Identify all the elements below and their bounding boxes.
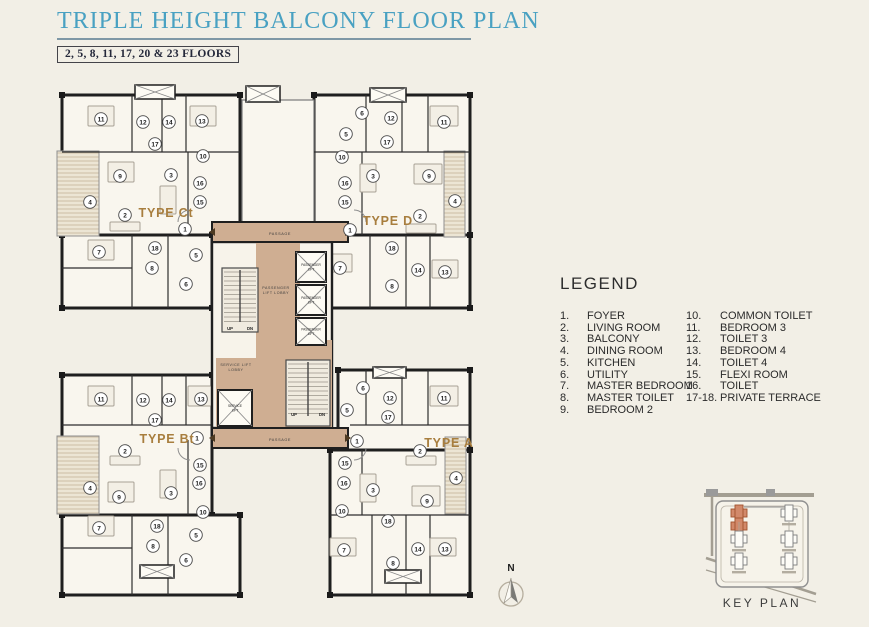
svg-text:11: 11	[441, 119, 448, 126]
legend-item: 14.TOILET 4	[686, 358, 818, 370]
svg-text:3: 3	[169, 490, 173, 497]
svg-text:3: 3	[169, 172, 173, 179]
svg-text:14: 14	[414, 267, 422, 274]
svg-text:9: 9	[118, 173, 122, 180]
svg-text:17: 17	[151, 417, 159, 424]
svg-text:9: 9	[117, 494, 121, 501]
svg-text:7: 7	[97, 249, 101, 256]
svg-text:5: 5	[345, 407, 349, 414]
svg-text:4: 4	[453, 198, 457, 205]
svg-text:17: 17	[383, 139, 391, 146]
svg-text:UP: UP	[227, 326, 233, 331]
legend-item: 5.KITCHEN	[560, 358, 686, 370]
key-plan	[704, 489, 816, 602]
svg-text:UP: UP	[291, 412, 297, 417]
svg-text:DN: DN	[247, 326, 253, 331]
svg-text:11: 11	[98, 116, 105, 123]
svg-text:12: 12	[139, 397, 147, 404]
north-label: N	[507, 563, 514, 574]
legend-item: 9.BEDROOM 2	[560, 405, 686, 417]
svg-text:14: 14	[165, 119, 173, 126]
svg-text:LIFT: LIFT	[232, 409, 239, 413]
svg-text:8: 8	[150, 265, 154, 272]
svg-text:15: 15	[341, 199, 349, 206]
svg-text:12: 12	[386, 395, 394, 402]
svg-text:16: 16	[340, 480, 348, 487]
svg-text:LOBBY: LOBBY	[229, 368, 244, 372]
svg-text:LIFT: LIFT	[308, 268, 315, 272]
svg-text:14: 14	[414, 546, 422, 553]
unit-type-label: TYPE Bt	[140, 432, 195, 446]
svg-text:9: 9	[425, 498, 429, 505]
legend-column-1: 1.FOYER2.LIVING ROOM3.BALCONY4.DINING RO…	[560, 311, 686, 416]
svg-text:PASSAGE: PASSAGE	[269, 232, 291, 236]
svg-text:8: 8	[151, 543, 155, 550]
floor-plan: PASSENGERLIFTPASSENGERLIFTPASSENGERLIFTS…	[57, 85, 474, 598]
svg-text:LIFT: LIFT	[308, 301, 315, 305]
svg-text:13: 13	[441, 546, 449, 553]
svg-text:11: 11	[441, 395, 448, 402]
svg-text:10: 10	[338, 154, 346, 161]
svg-text:PASSENGER: PASSENGER	[301, 296, 321, 300]
svg-text:SERVICE LIFT: SERVICE LIFT	[220, 363, 252, 367]
svg-text:15: 15	[196, 462, 204, 469]
svg-text:DN: DN	[319, 412, 325, 417]
legend-panel: LEGEND 1.FOYER2.LIVING ROOM3.BALCONY4.DI…	[560, 274, 822, 416]
svg-text:6: 6	[184, 281, 188, 288]
svg-text:13: 13	[441, 269, 449, 276]
legend-item: 17-18.PRIVATE TERRACE	[686, 393, 818, 405]
svg-text:2: 2	[418, 448, 422, 455]
svg-text:1: 1	[355, 438, 359, 445]
svg-text:18: 18	[384, 518, 392, 525]
svg-text:10: 10	[199, 153, 207, 160]
svg-text:17: 17	[151, 141, 159, 148]
svg-text:8: 8	[391, 560, 395, 567]
svg-text:10: 10	[338, 508, 346, 515]
legend-title: LEGEND	[560, 274, 822, 294]
svg-text:2: 2	[418, 213, 422, 220]
svg-text:SERVICE: SERVICE	[228, 404, 242, 408]
svg-text:6: 6	[361, 385, 365, 392]
key-plan-caption: KEY PLAN	[700, 596, 824, 610]
svg-text:4: 4	[454, 475, 458, 482]
svg-text:2: 2	[123, 212, 127, 219]
svg-text:PASSENGER: PASSENGER	[301, 263, 321, 267]
svg-text:4: 4	[88, 199, 92, 206]
svg-text:1: 1	[348, 227, 352, 234]
svg-text:16: 16	[195, 480, 203, 487]
svg-text:1: 1	[195, 435, 199, 442]
svg-text:12: 12	[139, 119, 147, 126]
svg-text:6: 6	[360, 110, 364, 117]
page: TRIPLE HEIGHT BALCONY FLOOR PLAN 2, 5, 8…	[0, 0, 869, 627]
svg-text:12: 12	[387, 115, 395, 122]
svg-text:5: 5	[194, 252, 198, 259]
svg-text:18: 18	[153, 523, 161, 530]
svg-text:3: 3	[371, 487, 375, 494]
unit-type-label: TYPE D	[363, 214, 413, 228]
legend-item: 8.MASTER TOILET	[560, 393, 686, 405]
svg-text:6: 6	[184, 557, 188, 564]
svg-text:LIFT: LIFT	[308, 332, 315, 336]
svg-text:7: 7	[338, 265, 342, 272]
svg-text:11: 11	[98, 396, 105, 403]
svg-text:PASSENGER: PASSENGER	[301, 327, 321, 331]
svg-text:7: 7	[342, 547, 346, 554]
svg-text:16: 16	[196, 180, 204, 187]
legend-item: 1.FOYER	[560, 311, 686, 323]
svg-text:4: 4	[88, 485, 92, 492]
svg-text:5: 5	[194, 532, 198, 539]
svg-text:18: 18	[388, 245, 396, 252]
svg-text:15: 15	[341, 460, 349, 467]
svg-text:18: 18	[151, 245, 159, 252]
svg-text:14: 14	[165, 397, 173, 404]
svg-text:10: 10	[199, 509, 207, 516]
svg-text:3: 3	[371, 173, 375, 180]
svg-text:9: 9	[427, 173, 431, 180]
compass-north-icon: N	[499, 563, 523, 606]
svg-text:PASSAGE: PASSAGE	[269, 438, 291, 442]
unit-type-label: TYPE A	[424, 436, 473, 450]
svg-text:13: 13	[198, 118, 206, 125]
svg-text:7: 7	[97, 525, 101, 532]
svg-text:2: 2	[123, 448, 127, 455]
svg-text:PASSENGER: PASSENGER	[262, 286, 290, 290]
legend-column-2: 10.COMMON TOILET11.BEDROOM 312.TOILET 31…	[686, 311, 818, 416]
svg-text:LIFT LOBBY: LIFT LOBBY	[263, 291, 289, 295]
svg-text:17: 17	[384, 414, 392, 421]
svg-text:5: 5	[344, 131, 348, 138]
svg-text:8: 8	[390, 283, 394, 290]
legend-item: 10.COMMON TOILET	[686, 311, 818, 323]
svg-text:15: 15	[196, 199, 204, 206]
unit-type-label: TYPE Ct	[139, 206, 194, 220]
svg-text:13: 13	[197, 396, 205, 403]
svg-text:16: 16	[341, 180, 349, 187]
svg-text:1: 1	[183, 226, 187, 233]
